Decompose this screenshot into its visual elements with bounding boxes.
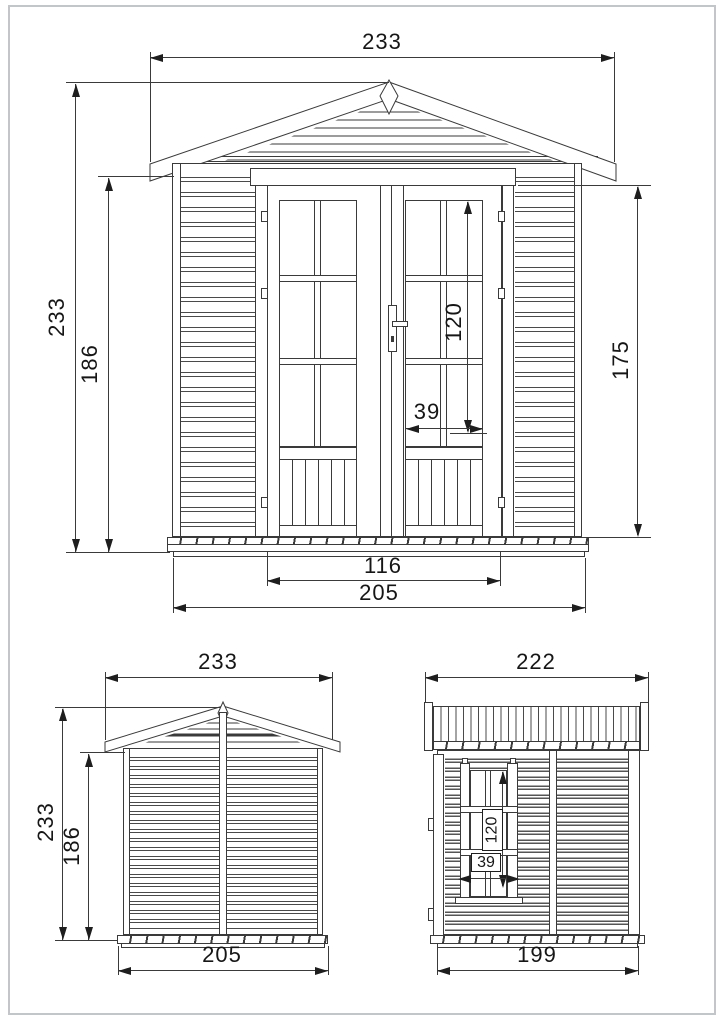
front-right-bottom-rail [405, 525, 483, 537]
side-door-hinge [428, 908, 434, 921]
side-roof-cap-right [640, 702, 649, 751]
dim-label: 116 [364, 553, 402, 579]
front-left-glazing-muntin-v [314, 200, 321, 447]
dim-label: 233 [33, 802, 59, 842]
side-roof-cap-left [424, 702, 433, 751]
side-window-peg [510, 758, 516, 764]
door-handle-lever [392, 321, 408, 327]
back-corner-trim-right [317, 748, 318, 935]
side-door-edge [433, 754, 444, 936]
dim-label: 199 [517, 942, 557, 968]
front-left-glazing-rail [279, 275, 357, 282]
dim-label: 175 [608, 340, 634, 380]
side-corner-trim-right [628, 750, 629, 935]
front-siding-right [515, 167, 574, 535]
side-window-sill [455, 897, 523, 904]
dim-label: 205 [202, 942, 242, 968]
front-hinge [498, 497, 505, 508]
front-door-stile-line [380, 185, 381, 537]
dim-label: 222 [516, 649, 556, 675]
front-hinge [261, 288, 268, 299]
back-center-batten [219, 712, 227, 935]
dim-label: 233 [198, 649, 238, 675]
side-roof-boards [433, 706, 640, 742]
front-right-glazing-rail [405, 358, 483, 365]
technical-drawing-page: 233 233 186 175 [0, 0, 724, 1024]
dim-label: 205 [359, 580, 399, 606]
front-left-bottom-rail [279, 525, 357, 537]
dim-label: 39 [414, 399, 440, 425]
dim-label: 233 [44, 297, 70, 337]
front-left-glazing-rail [279, 358, 357, 365]
dim-label: 186 [59, 826, 85, 866]
front-hinge [261, 497, 268, 508]
dim-label: 120 [441, 302, 467, 342]
front-hinge [261, 211, 268, 222]
side-window-peg [462, 758, 468, 764]
dim-label: 120 [484, 817, 502, 844]
door-handle-plate [388, 305, 397, 352]
front-door-frame-stile-right [502, 185, 503, 537]
side-door-hinge [428, 818, 434, 831]
front-left-slat-panel [279, 459, 357, 526]
front-hinge [498, 288, 505, 299]
side-center-batten [549, 750, 557, 935]
dim-label: 186 [77, 344, 103, 384]
dim-label: 39 [477, 854, 495, 872]
front-siding-left [181, 167, 255, 535]
front-right-slat-panel [405, 459, 483, 526]
front-door-stile-line [403, 185, 404, 537]
front-right-glazing-rail [405, 275, 483, 282]
front-hinge [498, 211, 505, 222]
door-keyhole [391, 336, 394, 342]
front-door-header-trim [250, 168, 516, 186]
front-corner-trim-right [574, 163, 575, 537]
dim-label: 233 [362, 29, 402, 55]
side-roof-fascia [433, 741, 640, 750]
